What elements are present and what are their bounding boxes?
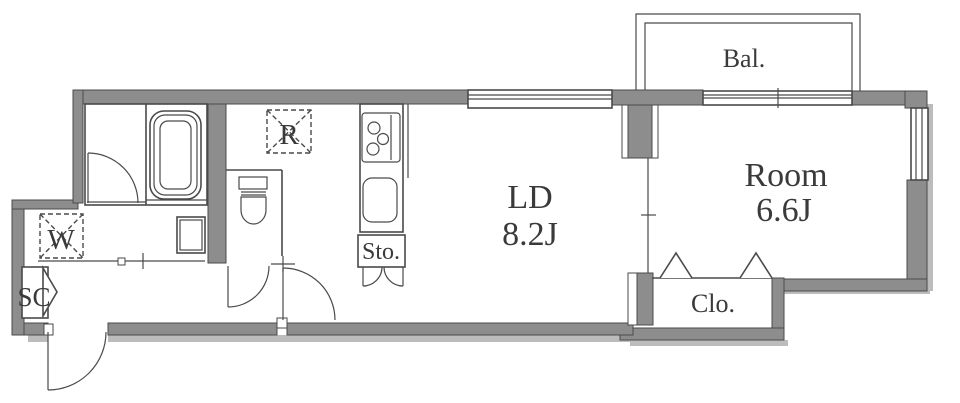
storage-label: Sto.	[362, 239, 400, 265]
floor-plan-svg: Bal.	[0, 0, 960, 403]
wall-partition-bottom	[637, 273, 653, 325]
window-right	[911, 108, 928, 180]
washer-label: W	[47, 224, 75, 256]
living-size-label: 8.2J	[502, 216, 558, 253]
washer-space: W	[40, 214, 83, 258]
living-label: LD	[507, 179, 552, 216]
wall-mid	[208, 104, 226, 263]
closet-door-mark	[740, 253, 772, 278]
bathroom-door	[88, 153, 138, 203]
kitchen: R Sto.	[267, 104, 408, 286]
balcony-sliding-door	[703, 88, 852, 108]
wall-bottom-2	[108, 323, 277, 335]
room-size-label: 6.6J	[756, 192, 812, 229]
refrigerator-space: R	[267, 110, 311, 153]
room-partition	[641, 158, 656, 273]
sink	[363, 178, 397, 222]
balcony: Bal.	[636, 14, 860, 91]
refrigerator-label: R	[279, 119, 299, 151]
window-top	[468, 90, 612, 108]
wall-top-mid	[612, 90, 703, 105]
wall-partition-top	[628, 105, 652, 158]
closet: Clo.	[652, 253, 772, 318]
storage-cabinet: Sto.	[358, 235, 405, 286]
wall-closet-bottom	[620, 328, 784, 340]
wall-bottom-3	[287, 323, 633, 335]
bathroom	[85, 104, 207, 205]
wall-right	[907, 180, 927, 291]
living-door	[283, 268, 335, 320]
door-jambs	[44, 105, 658, 335]
wall-bath-left	[73, 90, 83, 203]
toilet-door	[228, 266, 269, 307]
washbasin	[177, 217, 205, 253]
room-labels: LD 8.2J Room 6.6J	[502, 157, 827, 253]
toilet	[239, 177, 267, 224]
entrance-door	[48, 332, 106, 390]
wall-top-left	[73, 90, 468, 104]
balcony-label: Bal.	[723, 44, 766, 73]
toilet-room	[226, 170, 295, 307]
washroom: W	[38, 214, 205, 269]
wall-room-bottom	[775, 279, 927, 291]
room-label: Room	[744, 157, 827, 194]
bathtub	[150, 111, 201, 199]
kitchen-counter	[360, 104, 408, 232]
closet-label: Clo.	[691, 289, 735, 318]
wall-step	[12, 200, 78, 209]
floor-plan: Bal.	[0, 0, 960, 403]
shoe-cabinet-label: SC	[17, 282, 50, 312]
stove	[362, 113, 400, 162]
wall-corner-step	[905, 91, 927, 108]
closet-door-mark	[660, 253, 692, 278]
shoe-cabinet: SC	[17, 267, 57, 318]
